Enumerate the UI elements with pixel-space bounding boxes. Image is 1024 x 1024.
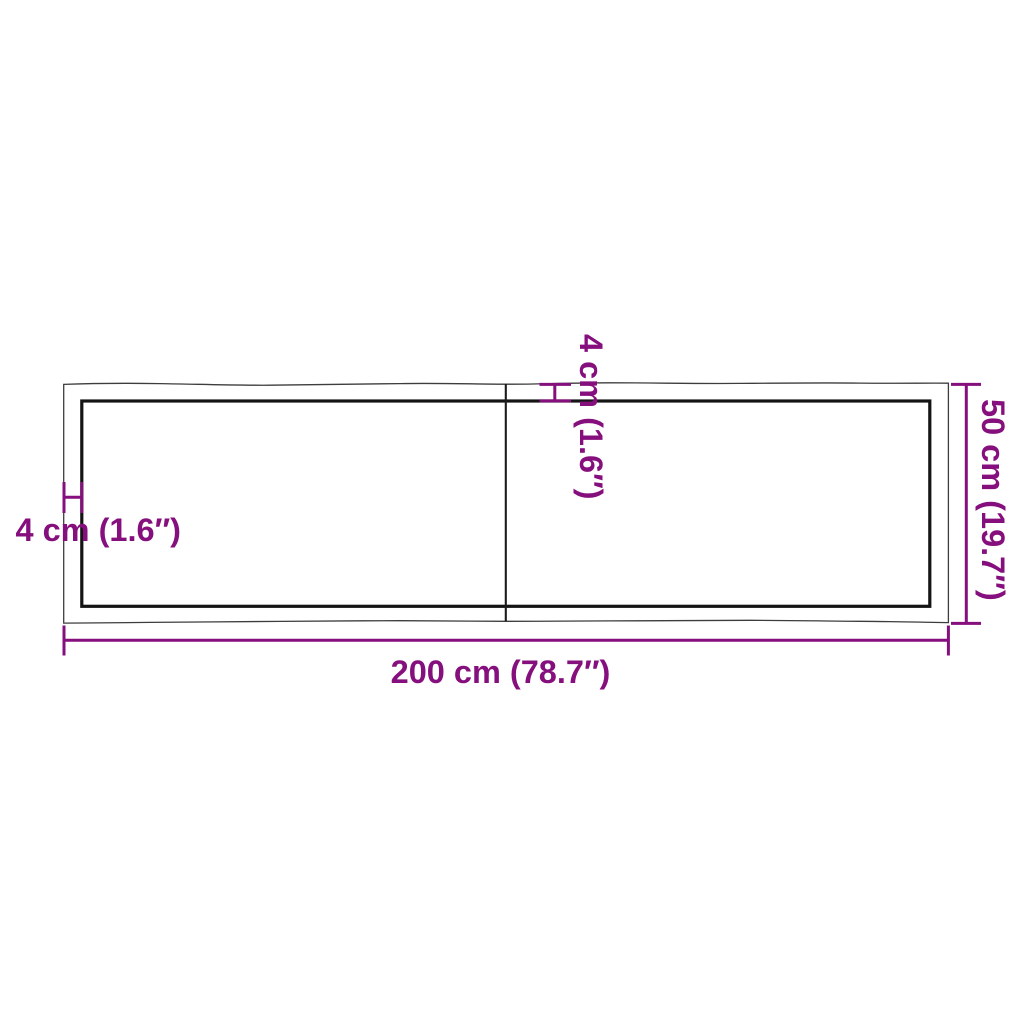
svg-text:4 cm (1.6″): 4 cm (1.6″) <box>573 334 609 500</box>
svg-text:50 cm (19.7″): 50 cm (19.7″) <box>975 399 1011 601</box>
svg-text:200 cm (78.7″): 200 cm (78.7″) <box>391 654 611 690</box>
svg-text:4 cm (1.6″): 4 cm (1.6″) <box>16 512 182 548</box>
